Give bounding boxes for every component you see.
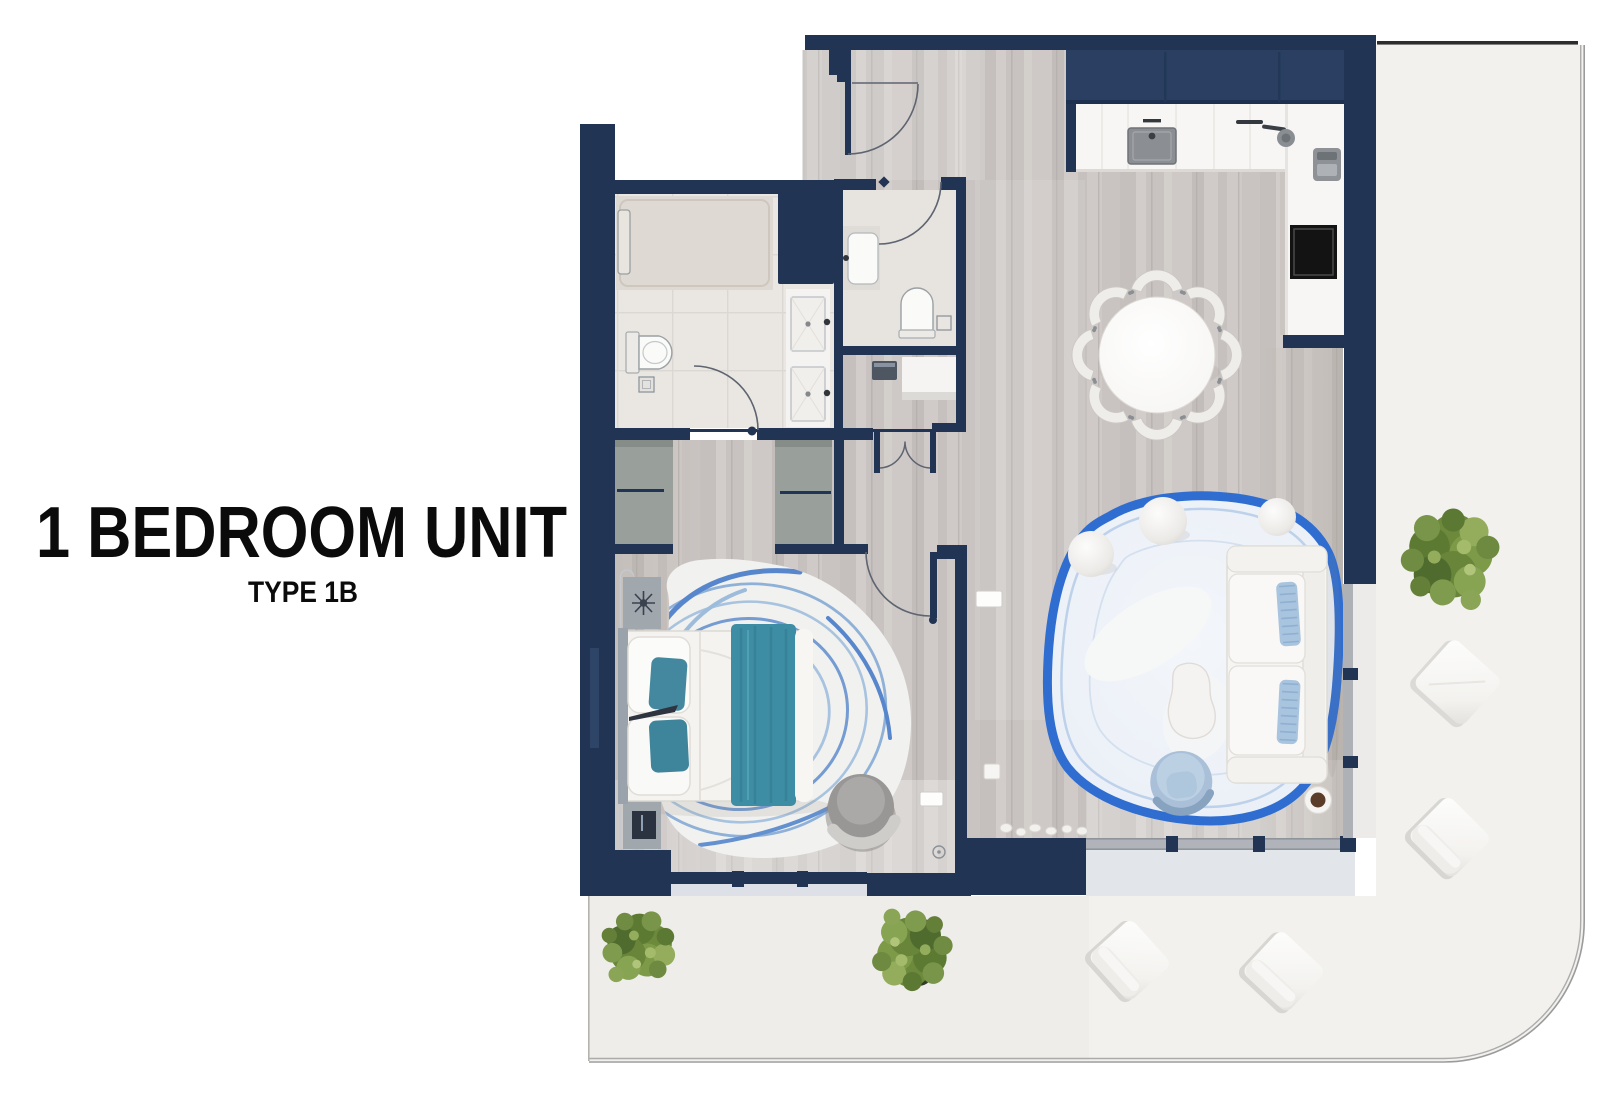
svg-text:1 BEDROOM UNIT: 1 BEDROOM UNIT <box>36 493 567 573</box>
svg-text:TYPE 1B: TYPE 1B <box>248 576 358 609</box>
